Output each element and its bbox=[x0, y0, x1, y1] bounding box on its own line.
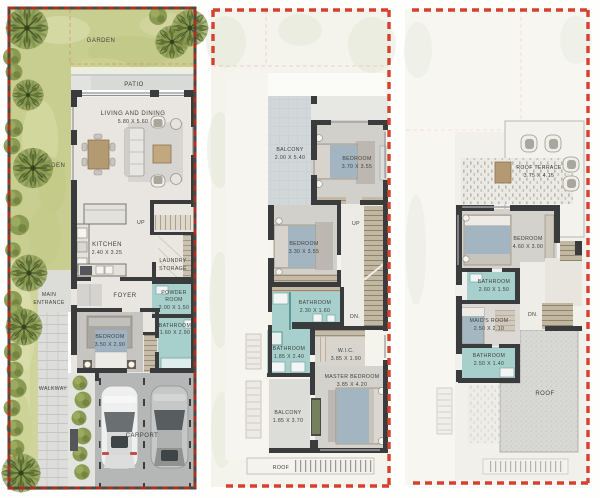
svg-text:W.I.C.: W.I.C. bbox=[338, 348, 354, 354]
svg-text:BATHROOM: BATHROOM bbox=[478, 279, 510, 285]
svg-text:3.50 X 2.90: 3.50 X 2.90 bbox=[95, 342, 125, 348]
svg-text:BATHROOM: BATHROOM bbox=[273, 346, 305, 352]
svg-text:MAIN: MAIN bbox=[42, 292, 56, 298]
svg-text:2.00 X 5.40: 2.00 X 5.40 bbox=[275, 155, 305, 161]
svg-text:BATHROOM: BATHROOM bbox=[159, 323, 191, 329]
svg-text:ENTRANCE: ENTRANCE bbox=[33, 300, 65, 306]
svg-text:3.85 X 4.20: 3.85 X 4.20 bbox=[337, 382, 367, 388]
svg-text:2.50 X 2.10: 2.50 X 2.10 bbox=[474, 326, 504, 332]
svg-text:3.30 X 3.55: 3.30 X 3.55 bbox=[289, 249, 319, 255]
svg-text:UP: UP bbox=[352, 221, 360, 227]
svg-text:POWDER: POWDER bbox=[161, 290, 186, 296]
svg-text:BEDROOM: BEDROOM bbox=[342, 156, 371, 162]
svg-text:BEDROOM: BEDROOM bbox=[95, 334, 124, 340]
svg-text:ROOF: ROOF bbox=[535, 391, 554, 397]
svg-text:ROOM: ROOM bbox=[165, 297, 183, 303]
svg-text:BATHROOM: BATHROOM bbox=[473, 353, 505, 359]
svg-text:KITCHEN: KITCHEN bbox=[92, 242, 122, 248]
svg-text:1.85 X 2.40: 1.85 X 2.40 bbox=[274, 354, 304, 360]
svg-text:ROOF: ROOF bbox=[273, 465, 289, 471]
svg-text:BATHROOM: BATHROOM bbox=[299, 300, 331, 306]
svg-text:2.30 X 1.60: 2.30 X 1.60 bbox=[300, 308, 330, 314]
svg-text:GARDEN: GARDEN bbox=[87, 38, 116, 44]
svg-text:LIVING AND DINING: LIVING AND DINING bbox=[101, 111, 166, 117]
svg-text:DN.: DN. bbox=[528, 312, 538, 318]
svg-text:BALCONY: BALCONY bbox=[276, 147, 303, 153]
svg-text:2.50 X 1.40: 2.50 X 1.40 bbox=[474, 361, 504, 367]
svg-text:UP: UP bbox=[137, 220, 145, 226]
svg-text:CARPORT: CARPORT bbox=[126, 433, 159, 439]
svg-text:ROOF TERRACE: ROOF TERRACE bbox=[516, 165, 562, 171]
svg-text:STORAGE: STORAGE bbox=[159, 266, 187, 272]
svg-text:3.75 X 4.15: 3.75 X 4.15 bbox=[524, 173, 554, 179]
svg-text:BEDROOM: BEDROOM bbox=[289, 241, 318, 247]
svg-text:2.40 X 3.25: 2.40 X 3.25 bbox=[92, 250, 122, 256]
svg-text:2.60 X 1.50: 2.60 X 1.50 bbox=[479, 287, 509, 293]
svg-text:5.80 X 5.60: 5.80 X 5.60 bbox=[118, 119, 148, 125]
svg-text:WALKWAY: WALKWAY bbox=[39, 386, 67, 392]
svg-text:MAID'S ROOM: MAID'S ROOM bbox=[470, 318, 509, 324]
svg-text:1.85 X 3.70: 1.85 X 3.70 bbox=[273, 418, 303, 424]
svg-text:MASTER BEDROOM: MASTER BEDROOM bbox=[325, 374, 380, 380]
svg-text:LAUNDRY: LAUNDRY bbox=[159, 258, 186, 264]
svg-text:1.60 X 2.90: 1.60 X 2.90 bbox=[160, 330, 190, 336]
svg-text:3.70 X 3.55: 3.70 X 3.55 bbox=[342, 164, 372, 170]
svg-text:BALCONY: BALCONY bbox=[274, 410, 301, 416]
svg-text:FOYER: FOYER bbox=[113, 293, 136, 299]
svg-text:DN.: DN. bbox=[350, 314, 360, 320]
svg-text:2.00 X 1.50: 2.00 X 1.50 bbox=[159, 305, 189, 311]
svg-text:BEDROOM: BEDROOM bbox=[513, 236, 542, 242]
svg-text:3.85 X 1.90: 3.85 X 1.90 bbox=[331, 356, 361, 362]
svg-text:4.60 X 3.00: 4.60 X 3.00 bbox=[513, 244, 543, 250]
svg-text:PATIO: PATIO bbox=[124, 82, 144, 88]
